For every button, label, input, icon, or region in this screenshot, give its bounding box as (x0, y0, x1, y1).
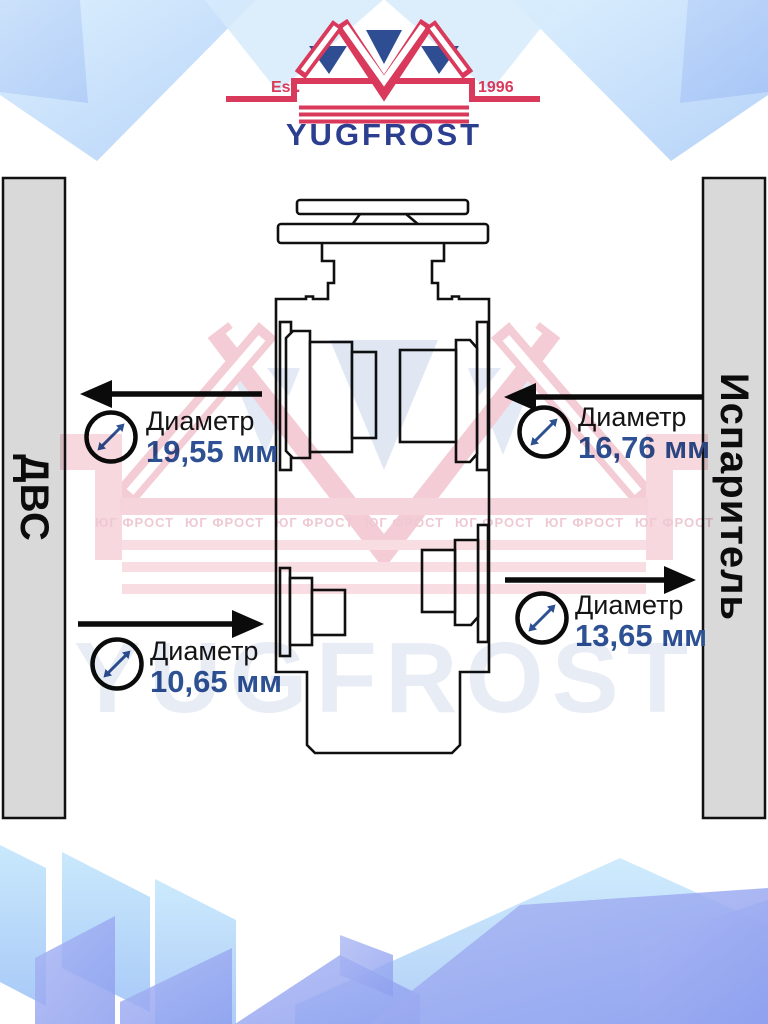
watermark-row-text: ЮГ ФРОСТ (635, 515, 714, 530)
decor-triangle (0, 0, 256, 161)
watermark-stripe (122, 540, 646, 550)
diagram-svg: Est. 1996 YUGFROST ДВС Испаритель (0, 0, 768, 1024)
watermark-roof-right (646, 434, 708, 560)
valve-cap-top-bar (297, 200, 468, 214)
port-lower-right-ring2 (455, 540, 478, 625)
port-lower-right-ring3 (422, 550, 455, 612)
right-bar-label: Испаритель (712, 373, 756, 621)
valve-neck-fill (322, 240, 444, 299)
watermark-row-text: ЮГ ФРОСТ (455, 515, 534, 530)
watermark-stripe (122, 584, 646, 594)
watermark-row-text: ЮГ ФРОСТ (275, 515, 354, 530)
watermark-row-text: ЮГ ФРОСТ (365, 515, 444, 530)
diameter-arrow-icon (534, 422, 554, 442)
watermark-row-text: ЮГ ФРОСТ (95, 515, 174, 530)
logo-est-label: Est. (271, 79, 300, 96)
valve-cap-flange (278, 224, 488, 243)
watermark-stripe (122, 562, 646, 572)
watermark: ЮГ ФРОСТ ЮГ ФРОСТ ЮГ ФРОСТ ЮГ ФРОСТ ЮГ Ф… (60, 330, 714, 734)
brand-name: YUGFROST (286, 117, 482, 152)
left-bar-label: ДВС (12, 454, 56, 542)
decor-triangle (512, 0, 768, 161)
dimension-label: Диаметр (575, 590, 683, 620)
watermark-roof-left (60, 434, 122, 560)
logo-year: 1996 (478, 79, 514, 96)
watermark-row-text: ЮГ ФРОСТ (185, 515, 264, 530)
arrowhead-left-icon (80, 380, 112, 408)
bottom-decor (0, 845, 768, 1024)
watermark-roof-bar (120, 498, 648, 515)
watermark-row-text: ЮГ ФРОСТ (545, 515, 624, 530)
infographic-canvas: Est. 1996 YUGFROST ДВС Испаритель (0, 0, 768, 1024)
